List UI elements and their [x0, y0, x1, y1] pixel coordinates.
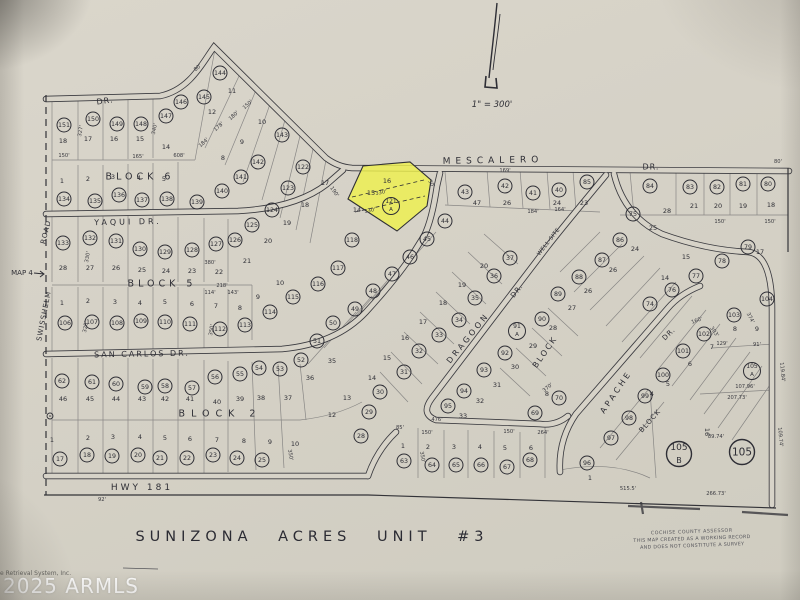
lot-number: 26 — [609, 266, 617, 274]
parcel-circle-54: 54 — [252, 361, 266, 375]
parcel-number: 117 — [332, 265, 344, 272]
parcel-number: 28 — [357, 433, 365, 440]
parcel-number: 145 — [198, 94, 210, 101]
parcel-circle-77: 77 — [689, 269, 703, 283]
parcel-circle-60: 60 — [109, 377, 123, 391]
parcel-number: 139 — [191, 199, 203, 206]
parcel-circle-49: 49 — [348, 302, 362, 316]
lot-number: 9 — [240, 138, 244, 146]
lot-number: 1 — [60, 177, 64, 185]
lot-number: 39 — [236, 395, 244, 403]
parcel-circle-82: 82 — [710, 180, 724, 194]
parcel-number: 40 — [555, 187, 563, 194]
lot-number: 19 — [739, 202, 747, 210]
lot-number: 37 — [284, 394, 292, 402]
parcel-circle-146: 146 — [174, 95, 188, 109]
lot-number: 18 — [301, 201, 309, 209]
parcel-number: 77 — [692, 273, 700, 280]
highlighted-parcel-121A — [348, 162, 431, 231]
lot-number: 33 — [459, 412, 467, 420]
lot-number: 7 — [215, 436, 219, 444]
parcel-circle-144: 144 — [213, 66, 227, 80]
assessor-stamp: COCHISE COUNTY ASSESSOR THIS MAP CREATED… — [632, 527, 751, 551]
street-label-road: ROAD — [39, 219, 53, 245]
parcel-number: 137 — [136, 197, 148, 204]
parcel-number: 52 — [297, 357, 305, 364]
parcel-circle-127: 127 — [209, 237, 223, 251]
parcel-circle-105A: 105A — [744, 363, 761, 380]
parcel-number: 20 — [134, 452, 142, 459]
parcel-number: 134 — [58, 196, 70, 203]
parcel-number: 65 — [452, 462, 460, 469]
parcel-number: 19 — [108, 453, 116, 460]
parcel-number: 84 — [646, 183, 654, 190]
parcel-number: 51 — [313, 338, 321, 345]
lot-number: 31 — [493, 381, 501, 389]
parcel-circle-43: 43 — [458, 185, 472, 199]
street-label-apache: APACHE — [598, 369, 633, 415]
parcel-circle-41: 41 — [526, 186, 540, 200]
parcel-circle-111: 111 — [183, 317, 197, 331]
parcel-number: 46 — [406, 254, 414, 261]
lot-number: 7 — [214, 302, 218, 310]
lot-number: 20 — [714, 202, 722, 210]
parcel-sub-letter: A — [750, 372, 754, 378]
dimension-label: 164' — [554, 207, 565, 213]
dimension-label: 218' — [216, 283, 227, 289]
lot-number: 28 — [59, 264, 67, 272]
lot-number: 47 — [473, 199, 481, 207]
parcel-circle-58: 58 — [158, 379, 172, 393]
parcel-circle-133: 133 — [56, 236, 70, 250]
dimension-label: 160' — [691, 316, 704, 326]
parcel-circle-57: 57 — [185, 381, 199, 395]
lot-number: 45 — [86, 395, 94, 403]
parcel-circle-25: 25 — [255, 453, 269, 467]
parcel-circle-105: 105 — [730, 440, 755, 465]
dimension-label: 380' — [204, 260, 215, 266]
parcel-circle-21: 21 — [153, 451, 167, 465]
parcel-number: 126 — [229, 237, 241, 244]
title-underline-mark — [123, 568, 158, 569]
parcel-circle-95: 95 — [441, 399, 455, 413]
dimension-label: 476' — [431, 417, 442, 423]
parcel-circle-78: 78 — [715, 254, 729, 268]
dimension-label: 109.74' — [776, 427, 784, 447]
parcel-number: 36 — [490, 273, 498, 280]
parcel-number: 109 — [135, 318, 147, 325]
parcel-circle-83: 83 — [683, 180, 697, 194]
parcel-number: 148 — [135, 121, 147, 128]
lot-number: 19 — [458, 281, 466, 289]
parcel-number: 64 — [428, 462, 436, 469]
parcel-circle-122: 122 — [296, 160, 310, 174]
parcel-number: 34 — [455, 317, 463, 324]
parcel-number: 99 — [641, 393, 649, 400]
lot-number: 10 — [258, 118, 266, 126]
lot-number: 20 — [264, 237, 272, 245]
parcel-number: 76 — [668, 287, 676, 294]
lot-number: 18 — [59, 137, 67, 145]
dimension-label: 129' — [716, 341, 727, 347]
dimension-label: 80' — [774, 159, 782, 165]
parcel-circle-135: 135 — [88, 194, 102, 208]
street-label-top-dr: DR. — [96, 95, 114, 106]
parcel-number: 98 — [625, 415, 633, 422]
parcel-number: 22 — [183, 455, 191, 462]
parcel-number: 91 — [513, 323, 521, 330]
lot-number: 2 — [426, 443, 430, 451]
lot-number: 25 — [649, 224, 657, 232]
parcel-number: 37 — [506, 255, 514, 262]
parcel-number: 61 — [88, 379, 96, 386]
parcel-circle-28: 28 — [354, 429, 368, 443]
dimension-label: 184' — [198, 137, 210, 149]
lot-number: 18 — [767, 201, 775, 209]
lot-number: 36 — [306, 374, 314, 382]
parcel-number: 103 — [728, 312, 740, 319]
parcel-number: 118 — [346, 237, 358, 244]
parcel-circle-145: 145 — [197, 90, 211, 104]
lot-number: 18 — [439, 299, 447, 307]
parcel-number: 81 — [739, 181, 747, 188]
lot-number: 9 — [268, 438, 272, 446]
parcel-circle-91A: 91A — [509, 323, 526, 340]
parcel-sub-letter: A — [515, 332, 519, 338]
lot-number: 8 — [238, 304, 242, 312]
parcel-circle-88: 88 — [572, 270, 586, 284]
lot-number: 30 — [511, 363, 519, 371]
parcel-circle-76: 76 — [665, 283, 679, 297]
dimension-label: 143' — [227, 290, 238, 296]
dimension-label: 340' — [151, 123, 159, 135]
lot-number: 16 — [401, 334, 409, 342]
parcel-number: 100 — [657, 372, 669, 379]
lot-number: 46 — [59, 395, 67, 403]
parcel-circle-110: 110 — [158, 315, 172, 329]
parcel-circle-87: 87 — [595, 253, 609, 267]
lot-number: 1 — [588, 474, 592, 482]
street-label-well-site: WELL-SITE — [536, 227, 561, 257]
parcel-circle-151: 151 — [57, 118, 71, 132]
lot-number: 40 — [213, 398, 221, 406]
block-label-block-2: BLOCK 2 — [179, 409, 262, 420]
lot-number: 6 — [529, 444, 533, 452]
parcel-number: 18 — [83, 452, 91, 459]
parcel-number: 60 — [112, 381, 120, 388]
street-label-mescalero: MESCALERO — [443, 155, 544, 167]
parcel-circle-139: 139 — [190, 195, 204, 209]
parcel-number: 82 — [713, 184, 721, 191]
lot-number: 17 — [321, 179, 329, 187]
lot-number: 19 — [283, 219, 291, 227]
parcel-circle-137: 137 — [135, 193, 149, 207]
parcel-number: 115 — [287, 294, 299, 301]
dimension-label: 91' — [753, 342, 761, 348]
parcel-number: 136 — [113, 192, 125, 199]
parcel-number: 144 — [214, 70, 226, 77]
lot-number: 24 — [631, 245, 639, 253]
lot-number: 14 — [661, 274, 669, 282]
lot-number: 16 — [383, 177, 391, 185]
parcel-number: 106 — [59, 320, 71, 327]
parcel-circle-129: 129 — [158, 245, 172, 259]
parcel-number: 135 — [89, 198, 101, 205]
road-outlines — [46, 47, 789, 505]
dimension-label: 515.5' — [620, 486, 636, 492]
street-label-dragoon-dr: DR. — [509, 283, 525, 300]
lot-number: 21 — [690, 202, 698, 210]
parcel-number: 105 — [732, 447, 752, 459]
parcel-circle-123: 123 — [281, 181, 295, 195]
parcel-circle-109: 109 — [134, 314, 148, 328]
parcel-circle-19: 19 — [105, 449, 119, 463]
lot-number: 35 — [328, 357, 336, 365]
lot-number: 12 — [328, 411, 336, 419]
parcel-number: 69 — [531, 410, 539, 417]
parcel-number: 47 — [388, 271, 396, 278]
parcel-circle-62: 62 — [55, 374, 69, 388]
parcel-number: 31 — [400, 369, 408, 376]
parcel-circle-18: 18 — [80, 448, 94, 462]
dimension-label: 150' — [503, 429, 514, 435]
parcel-circle-52: 52 — [294, 353, 308, 367]
parcel-circle-104: 104 — [760, 292, 774, 306]
lot-number: 42 — [161, 395, 169, 403]
lot-number: 5 — [163, 298, 167, 306]
parcel-number: 108 — [111, 320, 123, 327]
parcel-number: 97 — [607, 435, 615, 442]
parcel-number: 57 — [188, 385, 196, 392]
parcel-number: 93 — [480, 367, 488, 374]
parcel-number: 67 — [503, 464, 511, 471]
parcel-number: 141 — [235, 174, 247, 181]
parcel-circle-63: 63 — [397, 454, 411, 468]
parcel-number: 102 — [698, 331, 710, 338]
map4-arrow — [34, 271, 44, 277]
parcel-circle-42: 42 — [498, 179, 512, 193]
dimension-label: 114' — [204, 290, 215, 296]
parcel-number: 30 — [376, 389, 384, 396]
parcel-number: 138 — [161, 196, 173, 203]
parcel-number: 62 — [58, 378, 66, 385]
parcel-circle-74: 74 — [643, 297, 657, 311]
parcel-number: 80 — [764, 181, 772, 188]
dimension-label: 320' — [82, 321, 90, 333]
boundary-monument-dot — [49, 415, 51, 417]
parcel-number: 55 — [236, 371, 244, 378]
lot-number: 1 — [50, 436, 54, 444]
lot-number: 10 — [276, 279, 284, 287]
lot-number: 8 — [733, 325, 737, 333]
parcel-circle-90: 90 — [535, 312, 549, 326]
parcel-number: 29 — [365, 409, 373, 416]
parcel-circle-68: 68 — [523, 453, 537, 467]
parcel-circle-34: 34 — [452, 313, 466, 327]
lot-number: 2 — [86, 434, 90, 442]
parcel-number: 50 — [329, 320, 337, 327]
dimension-label: 150' — [764, 219, 775, 225]
lot-number: 17 — [84, 135, 92, 143]
lot-number: 4 — [138, 299, 142, 307]
street-label-san-carlos: SAN CARLOS DR. — [94, 349, 190, 360]
block-label-block: BLOCK — [531, 334, 559, 369]
dimension-label: 89.74' — [708, 434, 724, 440]
lot-number: 17 — [419, 318, 427, 326]
parcel-number: 122 — [297, 164, 309, 171]
parcel-number: 25 — [258, 457, 266, 464]
lot-number: 21 — [243, 257, 251, 265]
lot-number: 23 — [188, 267, 196, 275]
parcel-number: 116 — [312, 281, 324, 288]
lot-number: 15 — [383, 354, 391, 362]
lot-number: 27 — [86, 264, 94, 272]
parcel-number: 113 — [239, 322, 251, 329]
parcel-number: 32 — [415, 348, 423, 355]
parcel-circle-86: 86 — [613, 233, 627, 247]
parcel-circle-138: 138 — [160, 192, 174, 206]
parcel-circle-96: 96 — [580, 456, 594, 470]
parcel-sub-letter: A — [389, 207, 393, 213]
parcel-number: 127 — [210, 241, 222, 248]
parcel-circle-140: 140 — [215, 184, 229, 198]
lot-number: 26 — [503, 199, 511, 207]
lot-number: 7 — [710, 343, 714, 351]
parcel-number: 149 — [111, 121, 123, 128]
parcel-number: 121 — [385, 198, 397, 205]
lot-number: 26 — [112, 264, 120, 272]
parcel-number: 83 — [686, 184, 694, 191]
parcel-number: 150 — [87, 116, 99, 123]
parcel-number: 53 — [276, 366, 284, 373]
parcel-circle-37: 37 — [503, 251, 517, 265]
dimension-label: 350' — [286, 449, 294, 461]
lot-number: 13 — [343, 394, 351, 402]
dimension-label: 107.96' — [735, 384, 755, 390]
parcel-number: 114 — [264, 309, 276, 316]
block-label-block: BLOCK — [638, 408, 663, 434]
parcel-number: 112 — [214, 326, 226, 333]
parcel-number: 130 — [134, 246, 146, 253]
lot-number: 16 — [110, 135, 118, 143]
scale-label: 1" = 300' — [472, 100, 512, 110]
lot-number: 44 — [112, 395, 120, 403]
parcel-circle-22: 22 — [180, 451, 194, 465]
parcel-circle-118: 118 — [345, 233, 359, 247]
parcel-circle-80: 80 — [761, 177, 775, 191]
parcel-number: 140 — [216, 188, 228, 195]
parcel-circle-150: 150 — [86, 112, 100, 126]
dimension-label: 264' — [537, 430, 548, 436]
parcel-number: 132 — [84, 235, 96, 242]
parcel-number: 70 — [555, 395, 563, 402]
lot-number: 26 — [584, 287, 592, 295]
parcel-number: 89 — [554, 291, 562, 298]
parcel-circle-97: 97 — [604, 431, 618, 445]
lot-number: 4 — [650, 390, 654, 398]
lot-number: 12 — [208, 108, 216, 116]
parcel-number: 92 — [501, 350, 509, 357]
scanned-plat-map-photo: 1" = 300' MAP 4 151150149148147146145144… — [0, 0, 800, 600]
parcel-circle-29: 29 — [362, 405, 376, 419]
dimension-label: 207.73' — [727, 395, 747, 401]
parcel-circle-136: 136 — [112, 188, 126, 202]
parcel-circle-132: 132 — [83, 231, 97, 245]
lot-number: 24 — [162, 267, 170, 275]
dimension-label: 165' — [132, 154, 143, 160]
parcel-number: 54 — [255, 365, 263, 372]
parcel-circle-114: 114 — [263, 305, 277, 319]
parcel-number: 96 — [583, 460, 591, 467]
parcel-circle-24: 24 — [230, 451, 244, 465]
lot-number: 4 — [138, 433, 142, 441]
map4-label: MAP 4 — [11, 269, 33, 277]
parcel-circle-64: 64 — [425, 458, 439, 472]
parcel-number: 33 — [435, 332, 443, 339]
block-label-block-5: BLOCK 5 — [128, 279, 197, 290]
lot-number: 28 — [663, 207, 671, 215]
parcel-number: 59 — [141, 384, 149, 391]
dimension-label: 150' — [421, 430, 432, 436]
lot-number: 11 — [228, 87, 236, 95]
dimension-label: 119.84' — [778, 362, 786, 382]
parcel-circle-66: 66 — [474, 458, 488, 472]
parcel-number: 87 — [598, 257, 606, 264]
lot-number: 8 — [242, 437, 246, 445]
street-label-mescalero-dr: DR. — [643, 163, 660, 172]
parcel-circle-65: 65 — [449, 458, 463, 472]
lot-number: 6 — [688, 360, 692, 368]
parcel-number: 128 — [186, 247, 198, 254]
dimension-label: 150' — [58, 153, 69, 159]
parcel-number: 56 — [211, 374, 219, 381]
lot-number: 10 — [291, 440, 299, 448]
lot-number: 3 — [111, 433, 115, 441]
lot-number: 3 — [113, 298, 117, 306]
parcel-circle-81: 81 — [736, 177, 750, 191]
parcel-number: 41 — [529, 190, 537, 197]
street-label-hwy-181: HWY 181 — [111, 483, 173, 493]
parcel-circle-59: 59 — [138, 380, 152, 394]
parcel-circle-92: 92 — [498, 346, 512, 360]
lot-number: 5 — [666, 380, 670, 388]
parcel-circle-67: 67 — [500, 460, 514, 474]
dimension-label: 169' — [499, 168, 510, 174]
lot-number: 25 — [138, 266, 146, 274]
parcel-circle-36: 36 — [487, 269, 501, 283]
parcel-number: 45 — [423, 236, 431, 243]
parcel-number: 110 — [159, 319, 171, 326]
parcel-circle-44: 44 — [438, 214, 452, 228]
parcel-circle-17: 17 — [53, 452, 67, 466]
parcel-circle-117: 117 — [331, 261, 345, 275]
parcel-number: 123 — [282, 185, 294, 192]
lot-number: 9 — [755, 325, 759, 333]
north-arrow — [485, 3, 500, 88]
parcel-circle-85: 85 — [580, 175, 594, 189]
parcel-number: 94 — [460, 388, 468, 395]
lot-number: 27 — [568, 304, 576, 312]
parcel-circle-148: 148 — [134, 117, 148, 131]
parcel-number: 49 — [351, 306, 359, 313]
dimension-label: 190' — [328, 186, 339, 199]
parcel-number: 86 — [616, 237, 624, 244]
dimension-label: 330' — [84, 251, 92, 263]
lot-number: 2 — [86, 175, 90, 183]
parcel-number: 75 — [629, 211, 637, 218]
parcel-number: 129 — [159, 249, 171, 256]
parcel-circle-101: 101 — [676, 344, 690, 358]
